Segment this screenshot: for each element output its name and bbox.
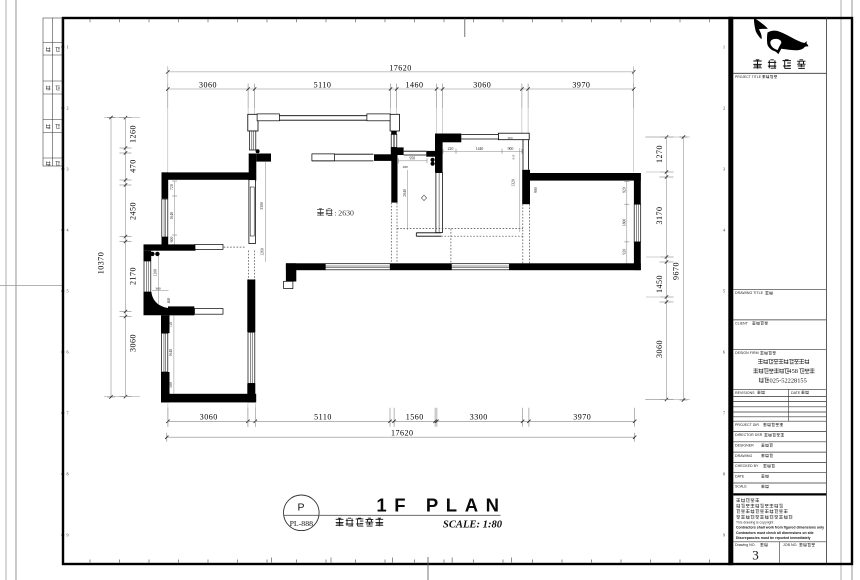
svg-text:DATE: DATE bbox=[791, 391, 801, 395]
svg-text:1: 1 bbox=[67, 45, 69, 50]
svg-text:460: 460 bbox=[167, 298, 171, 304]
svg-text:1260: 1260 bbox=[129, 125, 138, 143]
svg-text:5: 5 bbox=[67, 289, 69, 294]
svg-text:2450: 2450 bbox=[129, 202, 138, 220]
svg-text:This drawing is copyright: This drawing is copyright bbox=[736, 520, 773, 524]
svg-text:2040: 2040 bbox=[403, 189, 407, 197]
svg-text:3060: 3060 bbox=[655, 340, 664, 358]
svg-text:2: 2 bbox=[723, 106, 725, 111]
svg-text:360: 360 bbox=[155, 286, 161, 290]
svg-text:5: 5 bbox=[723, 289, 725, 294]
svg-text:5110: 5110 bbox=[314, 80, 332, 89]
svg-text:7: 7 bbox=[67, 411, 69, 416]
svg-text:1: 1 bbox=[723, 45, 725, 50]
svg-text:1260: 1260 bbox=[261, 248, 265, 256]
svg-text:6: 6 bbox=[723, 350, 725, 355]
svg-text:PROJECT TITLE: PROJECT TITLE bbox=[735, 75, 762, 79]
svg-text:REVISIONS: REVISIONS bbox=[735, 391, 755, 395]
svg-text:1440: 1440 bbox=[476, 147, 484, 151]
svg-text:5110: 5110 bbox=[314, 413, 332, 422]
svg-text:3060: 3060 bbox=[473, 80, 491, 89]
svg-text:9: 9 bbox=[67, 533, 69, 538]
svg-text:3300: 3300 bbox=[470, 413, 488, 422]
svg-text:1560: 1560 bbox=[406, 413, 424, 422]
svg-text:Contractors shall work from fi: Contractors shall work from figured dime… bbox=[736, 526, 824, 530]
svg-text:3300: 3300 bbox=[260, 202, 264, 210]
svg-text:3060: 3060 bbox=[199, 80, 217, 89]
svg-text:4: 4 bbox=[723, 228, 725, 233]
svg-text:3: 3 bbox=[67, 167, 69, 172]
svg-text:3060: 3060 bbox=[200, 413, 218, 422]
svg-text:2: 2 bbox=[67, 106, 69, 111]
svg-text:1320: 1320 bbox=[512, 179, 516, 187]
svg-text:3: 3 bbox=[752, 548, 759, 563]
svg-text:1460: 1460 bbox=[406, 80, 424, 89]
svg-text:920: 920 bbox=[622, 249, 626, 255]
svg-text:900: 900 bbox=[508, 136, 513, 140]
svg-text:1800: 1800 bbox=[622, 219, 626, 227]
svg-text:17620: 17620 bbox=[391, 429, 414, 438]
svg-text:3970: 3970 bbox=[572, 80, 590, 89]
svg-text:DESIGNER: DESIGNER bbox=[735, 444, 754, 448]
svg-text:470: 470 bbox=[129, 159, 138, 173]
svg-text:CHECKED BY: CHECKED BY bbox=[735, 464, 759, 468]
svg-text:DRAWING: DRAWING bbox=[735, 454, 752, 458]
svg-text:3060: 3060 bbox=[129, 334, 138, 352]
svg-text:7: 7 bbox=[723, 411, 725, 416]
svg-text:458: 458 bbox=[788, 368, 798, 375]
svg-text:6: 6 bbox=[67, 350, 69, 355]
svg-text:920: 920 bbox=[622, 187, 626, 193]
svg-text:1640: 1640 bbox=[169, 349, 173, 357]
svg-text:600: 600 bbox=[170, 237, 174, 243]
svg-text:3: 3 bbox=[723, 167, 725, 172]
svg-text:SCALE: 1:80: SCALE: 1:80 bbox=[443, 519, 503, 530]
svg-text:DRAWING TITLE: DRAWING TITLE bbox=[735, 291, 764, 295]
svg-text:DATE: DATE bbox=[735, 474, 745, 478]
svg-text:1640: 1640 bbox=[170, 212, 174, 220]
svg-text:Discrepancies must be reported: Discrepancies must be reported immediate… bbox=[736, 536, 811, 540]
svg-text:17620: 17620 bbox=[389, 63, 412, 72]
svg-text:1200: 1200 bbox=[153, 269, 157, 277]
svg-text:10370: 10370 bbox=[97, 252, 106, 275]
svg-text:: 025-52228155: : 025-52228155 bbox=[766, 377, 807, 384]
svg-text:2170: 2170 bbox=[129, 267, 138, 285]
svg-text:8: 8 bbox=[67, 472, 69, 477]
svg-text:220: 220 bbox=[448, 147, 454, 151]
svg-text:P: P bbox=[297, 502, 304, 514]
svg-text:720: 720 bbox=[169, 322, 173, 328]
svg-text:1270: 1270 bbox=[655, 145, 664, 163]
svg-text:500: 500 bbox=[169, 382, 173, 388]
svg-text:PL-888: PL-888 bbox=[290, 519, 313, 528]
svg-text:4: 4 bbox=[67, 228, 69, 233]
svg-text:900: 900 bbox=[534, 187, 538, 193]
svg-text:280: 280 bbox=[403, 165, 409, 169]
svg-text:1F PLAN: 1F PLAN bbox=[376, 494, 506, 515]
svg-text:8: 8 bbox=[723, 472, 725, 477]
svg-text:900: 900 bbox=[508, 147, 514, 151]
svg-text:: 2630: : 2630 bbox=[334, 208, 354, 217]
svg-text:CLIENT: CLIENT bbox=[735, 321, 749, 325]
svg-text:SCALE: SCALE bbox=[735, 485, 747, 489]
svg-text:915: 915 bbox=[512, 154, 516, 159]
svg-text:9670: 9670 bbox=[672, 262, 681, 280]
svg-text:Contractors must check all dim: Contractors must check all dimensions on… bbox=[736, 531, 814, 535]
svg-text:950: 950 bbox=[409, 157, 415, 161]
svg-text:720: 720 bbox=[170, 184, 174, 190]
svg-text:DIRECTOR DSR: DIRECTOR DSR bbox=[735, 433, 763, 437]
svg-text:9: 9 bbox=[723, 533, 725, 538]
svg-text:JOB NO.: JOB NO. bbox=[783, 543, 797, 547]
svg-text:1450: 1450 bbox=[655, 275, 664, 293]
svg-text:3170: 3170 bbox=[655, 207, 664, 225]
svg-text:3970: 3970 bbox=[573, 413, 591, 422]
svg-text:DESIGN FIRM: DESIGN FIRM bbox=[735, 351, 759, 355]
svg-text:PROJECT DIR: PROJECT DIR bbox=[735, 423, 759, 427]
